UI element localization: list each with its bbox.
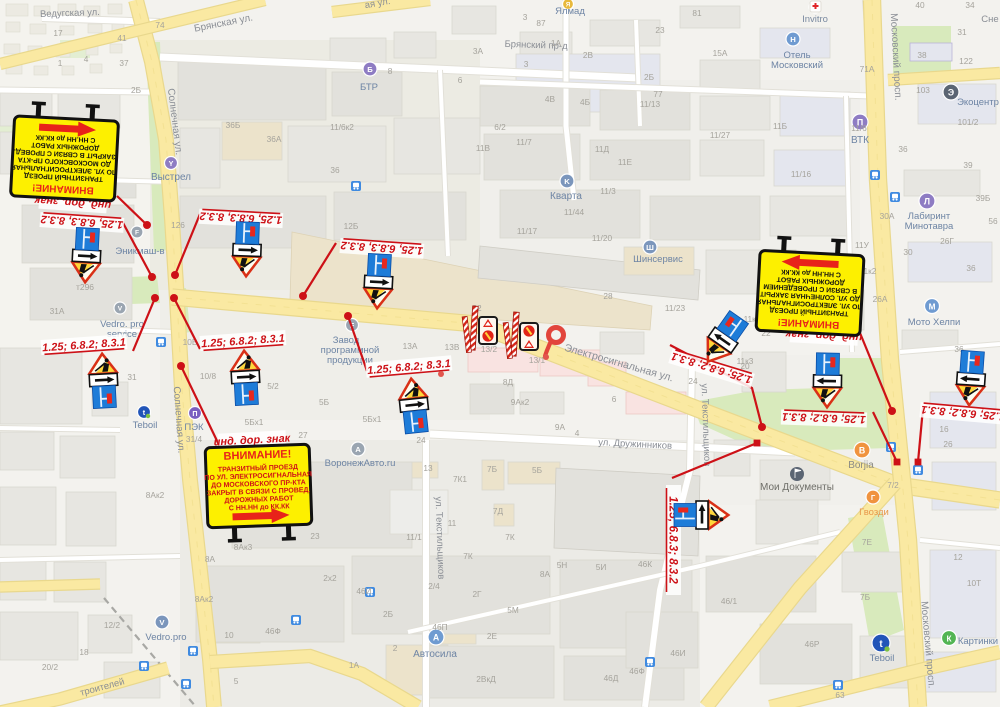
svg-text:12Б: 12Б (344, 221, 359, 231)
svg-text:5Бх1: 5Бх1 (363, 414, 382, 424)
svg-text:11/23: 11/23 (665, 303, 686, 313)
svg-text:11В: 11В (476, 143, 491, 153)
svg-text:3: 3 (524, 59, 529, 69)
svg-text:11/13: 11/13 (640, 99, 661, 109)
svg-text:11Б: 11Б (773, 121, 788, 131)
svg-text:Б: Б (367, 65, 373, 74)
svg-text:12: 12 (953, 552, 963, 562)
svg-text:Экоцентр: Экоцентр (957, 97, 999, 108)
svg-text:Ш: Ш (646, 243, 654, 252)
svg-text:36Б: 36Б (226, 120, 241, 130)
svg-text:4: 4 (575, 428, 580, 438)
svg-text:2Б: 2Б (383, 609, 394, 619)
svg-text:37: 37 (119, 58, 129, 68)
svg-text:40: 40 (915, 0, 925, 10)
svg-text:V: V (159, 618, 165, 627)
svg-text:71А: 71А (860, 64, 875, 74)
svg-text:10/8: 10/8 (200, 371, 217, 381)
svg-text:А: А (433, 633, 440, 643)
svg-text:П: П (192, 410, 197, 418)
svg-text:8Д: 8Д (503, 377, 514, 387)
svg-text:36А: 36А (267, 134, 282, 144)
svg-text:46Д: 46Д (604, 673, 619, 683)
svg-text:Мои Документы: Мои Документы (760, 482, 834, 493)
svg-text:11/27: 11/27 (710, 130, 731, 140)
svg-text:6: 6 (612, 394, 617, 404)
svg-text:11Д: 11Д (595, 144, 610, 154)
svg-text:11/16: 11/16 (791, 169, 812, 179)
svg-text:8Ак2: 8Ак2 (195, 594, 214, 604)
svg-text:3: 3 (523, 12, 528, 22)
svg-text:20/2: 20/2 (42, 662, 59, 672)
svg-text:Минотавра: Минотавра (905, 221, 954, 232)
svg-text:2Б: 2Б (644, 72, 655, 82)
svg-text:74: 74 (155, 20, 165, 30)
svg-text:5И: 5И (596, 562, 607, 572)
svg-text:Гвозди: Гвозди (859, 507, 889, 518)
svg-text:4Б: 4Б (580, 97, 591, 107)
svg-text:4В: 4В (545, 94, 556, 104)
svg-text:5М: 5М (507, 605, 519, 615)
svg-text:2: 2 (393, 643, 398, 653)
svg-text:F: F (135, 230, 139, 237)
svg-text:39: 39 (963, 160, 973, 170)
svg-text:103: 103 (916, 85, 930, 95)
svg-text:ВНИМАНИЕ!: ВНИМАНИЕ! (223, 448, 291, 462)
svg-text:11/6: 11/6 (851, 123, 867, 133)
svg-text:10: 10 (224, 630, 234, 640)
svg-text:8А: 8А (540, 569, 551, 579)
svg-text:11: 11 (448, 518, 457, 528)
svg-text:24: 24 (688, 376, 698, 386)
svg-text:11/3: 11/3 (600, 186, 616, 196)
svg-text:17: 17 (53, 28, 63, 38)
svg-text:2В: 2В (583, 50, 594, 60)
svg-text:31/4: 31/4 (186, 434, 203, 444)
svg-text:56: 56 (988, 216, 998, 226)
svg-text:6/2: 6/2 (494, 122, 506, 132)
svg-text:46П: 46П (432, 622, 447, 632)
svg-text:81: 81 (692, 8, 702, 18)
svg-text:122: 122 (959, 56, 973, 66)
svg-text:11У: 11У (855, 240, 870, 250)
svg-text:41: 41 (117, 33, 127, 43)
svg-text:V: V (118, 306, 123, 313)
svg-text:24: 24 (416, 435, 426, 445)
svg-text:13А: 13А (403, 341, 418, 351)
svg-text:11/20: 11/20 (592, 233, 613, 243)
svg-text:18: 18 (79, 647, 89, 657)
svg-text:46И: 46И (356, 586, 371, 596)
svg-text:7Д: 7Д (493, 506, 504, 516)
svg-text:5: 5 (234, 676, 239, 686)
svg-text:1А: 1А (551, 38, 562, 48)
svg-text:Borjia: Borjia (848, 460, 874, 471)
svg-text:Картинки: Картинки (958, 636, 998, 647)
svg-text:3А: 3А (473, 46, 484, 56)
svg-text:8Ак2: 8Ак2 (146, 490, 165, 500)
svg-text:ПЭК: ПЭК (184, 422, 204, 433)
svg-text:5/2: 5/2 (267, 381, 279, 391)
svg-text:8Ак3: 8Ак3 (234, 542, 253, 552)
svg-text:Teboil: Teboil (133, 420, 158, 431)
svg-text:46И: 46И (670, 648, 685, 658)
svg-text:7К: 7К (463, 551, 473, 561)
svg-text:2/4: 2/4 (428, 581, 440, 591)
svg-text:Московский: Московский (771, 60, 823, 71)
svg-text:28: 28 (603, 291, 613, 301)
svg-text:31: 31 (127, 372, 137, 382)
svg-text:БТР: БТР (360, 82, 378, 93)
svg-text:11/17: 11/17 (517, 226, 538, 236)
svg-text:Мото Хелпи: Мото Хелпи (908, 317, 961, 328)
svg-text:2х2: 2х2 (323, 573, 337, 583)
svg-text:2Г: 2Г (472, 589, 482, 599)
svg-text:101/2: 101/2 (958, 117, 979, 127)
svg-text:126: 126 (171, 220, 185, 230)
svg-text:8А: 8А (205, 554, 216, 564)
svg-text:31: 31 (957, 27, 967, 37)
svg-text:26: 26 (943, 439, 953, 449)
svg-text:Vedro.pro: Vedro.pro (145, 632, 186, 643)
svg-text:23: 23 (310, 531, 320, 541)
svg-text:Л: Л (924, 197, 930, 207)
svg-text:4: 4 (84, 54, 89, 64)
svg-text:11/6к2: 11/6к2 (330, 122, 354, 132)
svg-text:Выстрел: Выстрел (151, 172, 191, 183)
svg-text:1А: 1А (349, 660, 360, 670)
svg-text:6: 6 (458, 75, 463, 85)
svg-text:30А: 30А (880, 211, 895, 221)
svg-text:2Е: 2Е (487, 631, 498, 641)
svg-text:27: 27 (298, 430, 308, 440)
svg-text:1: 1 (58, 58, 63, 68)
svg-text:46Ф: 46Ф (265, 626, 281, 636)
svg-text:8: 8 (388, 66, 393, 76)
svg-text:13/2: 13/2 (481, 344, 498, 354)
svg-text:34: 34 (965, 0, 975, 10)
svg-text:10Т: 10Т (967, 578, 981, 588)
svg-text:Г: Г (871, 493, 876, 502)
svg-text:36: 36 (898, 144, 908, 154)
svg-text:13В: 13В (445, 342, 460, 352)
svg-text:2ВкД: 2ВкД (476, 674, 496, 684)
svg-text:5Бх1: 5Бх1 (245, 417, 264, 427)
svg-text:Ялмад: Ялмад (555, 6, 585, 17)
svg-text:9А: 9А (555, 422, 566, 432)
svg-text:16: 16 (939, 424, 949, 434)
svg-text:2Б: 2Б (131, 85, 142, 95)
svg-text:H: H (790, 35, 796, 44)
svg-text:11/1: 11/1 (406, 532, 422, 542)
svg-text:7Б: 7Б (487, 464, 498, 474)
svg-text:Кварта: Кварта (550, 191, 582, 202)
svg-text:5Н: 5Н (557, 560, 568, 570)
svg-text:М: М (929, 302, 936, 311)
svg-text:11/44: 11/44 (564, 207, 585, 217)
svg-text:5Б: 5Б (532, 465, 543, 475)
svg-text:Шинсервис: Шинсервис (633, 254, 683, 265)
svg-text:23: 23 (655, 25, 665, 35)
svg-text:9Ак2: 9Ак2 (511, 397, 530, 407)
svg-text:7Б: 7Б (860, 592, 871, 602)
svg-text:Сне: Сне (981, 14, 998, 25)
svg-text:46/1: 46/1 (721, 596, 738, 606)
svg-text:77: 77 (653, 89, 663, 99)
svg-text:87: 87 (536, 18, 546, 28)
svg-text:38: 38 (917, 50, 927, 60)
svg-text:A: A (355, 445, 361, 454)
svg-text:7/2: 7/2 (887, 480, 899, 490)
svg-text:11к3: 11к3 (737, 356, 754, 366)
svg-text:12/2: 12/2 (104, 620, 121, 630)
svg-text:Ведугская ул.: Ведугская ул. (40, 7, 100, 20)
svg-text:7Е: 7Е (862, 537, 873, 547)
svg-text:36: 36 (330, 165, 340, 175)
svg-text:26Г: 26Г (940, 236, 954, 246)
svg-text:31А: 31А (50, 306, 65, 316)
svg-text:46К: 46К (638, 559, 652, 569)
svg-text:15А: 15А (713, 48, 728, 58)
svg-text:ВТК: ВТК (851, 135, 869, 146)
svg-text:Invitro: Invitro (802, 14, 828, 25)
svg-text:46Ф: 46Ф (629, 666, 645, 676)
svg-text:7К: 7К (505, 532, 515, 542)
svg-text:63: 63 (835, 690, 845, 700)
svg-text:5Б: 5Б (319, 397, 330, 407)
svg-text:11/7: 11/7 (516, 137, 532, 147)
svg-text:36: 36 (966, 263, 976, 273)
svg-text:39Б: 39Б (976, 193, 991, 203)
svg-text:B: B (859, 446, 865, 456)
svg-text:30: 30 (903, 247, 913, 257)
svg-text:K: K (564, 177, 570, 186)
svg-text:13: 13 (423, 463, 433, 473)
svg-text:Y: Y (169, 160, 174, 168)
svg-text:ВоронежАвто.ru: ВоронежАвто.ru (325, 458, 396, 469)
svg-text:7К1: 7К1 (453, 474, 467, 484)
svg-text:26А: 26А (873, 294, 888, 304)
svg-text:Автосила: Автосила (413, 649, 457, 660)
svg-text:46Р: 46Р (805, 639, 820, 649)
svg-text:Э: Э (948, 88, 954, 98)
svg-text:11Е: 11Е (618, 157, 633, 167)
svg-text:Teboil: Teboil (870, 653, 895, 664)
